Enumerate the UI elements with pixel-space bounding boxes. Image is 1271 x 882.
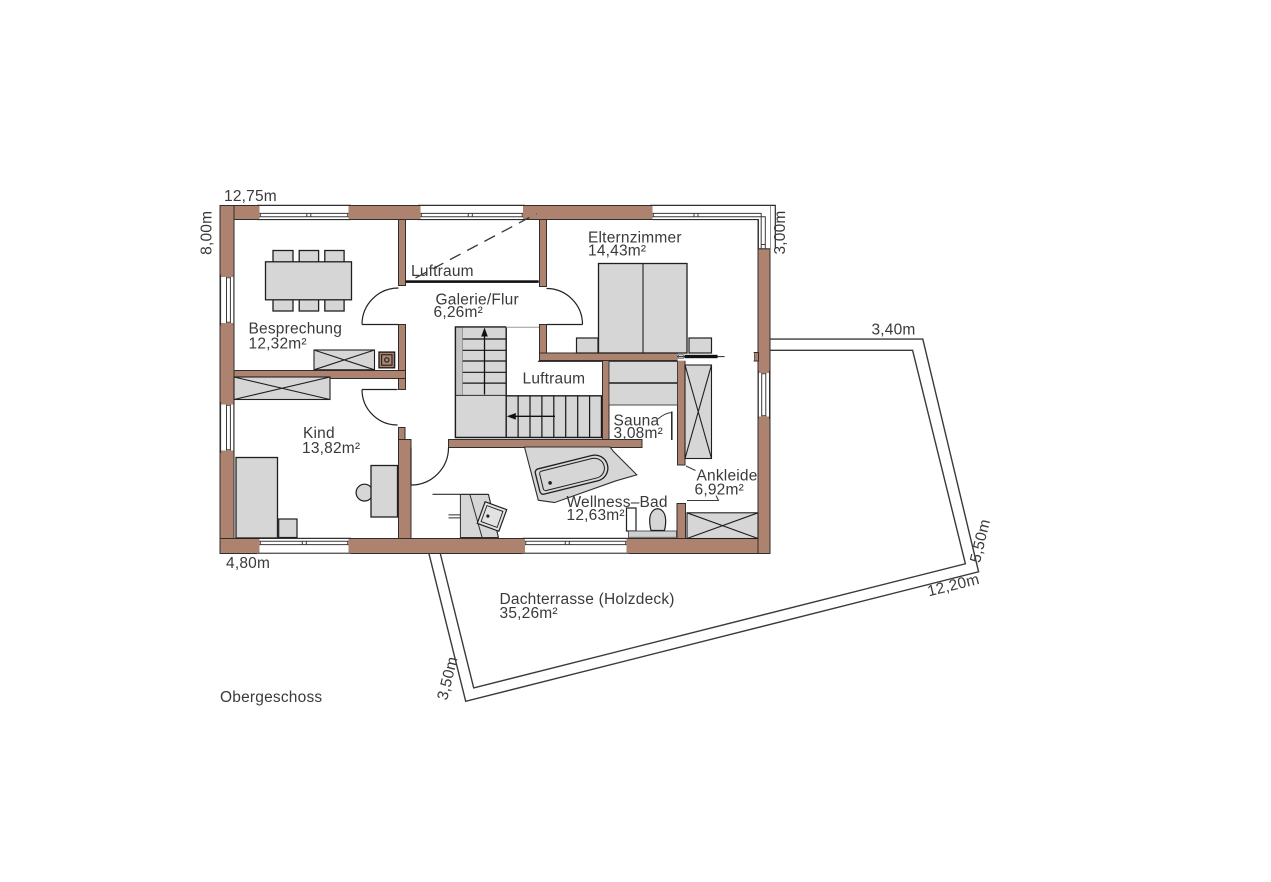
svg-text:3,00m: 3,00m bbox=[772, 210, 789, 254]
svg-text:Luftraum: Luftraum bbox=[411, 263, 474, 280]
svg-text:Obergeschoss: Obergeschoss bbox=[220, 689, 322, 706]
svg-text:6,26m²: 6,26m² bbox=[434, 304, 483, 321]
svg-text:12,75m: 12,75m bbox=[224, 188, 277, 205]
svg-text:8,00m: 8,00m bbox=[199, 211, 216, 255]
svg-text:6,92m²: 6,92m² bbox=[695, 482, 744, 499]
svg-text:3,40m: 3,40m bbox=[871, 322, 915, 339]
svg-text:13,82m²: 13,82m² bbox=[302, 440, 360, 457]
svg-text:4,80m: 4,80m bbox=[226, 555, 270, 572]
svg-text:3,08m²: 3,08m² bbox=[614, 425, 663, 442]
svg-text:14,43m²: 14,43m² bbox=[588, 243, 646, 260]
svg-text:Luftraum: Luftraum bbox=[523, 371, 586, 388]
svg-text:12,63m²: 12,63m² bbox=[567, 507, 625, 524]
svg-text:35,26m²: 35,26m² bbox=[500, 605, 558, 622]
svg-text:12,32m²: 12,32m² bbox=[249, 336, 307, 353]
